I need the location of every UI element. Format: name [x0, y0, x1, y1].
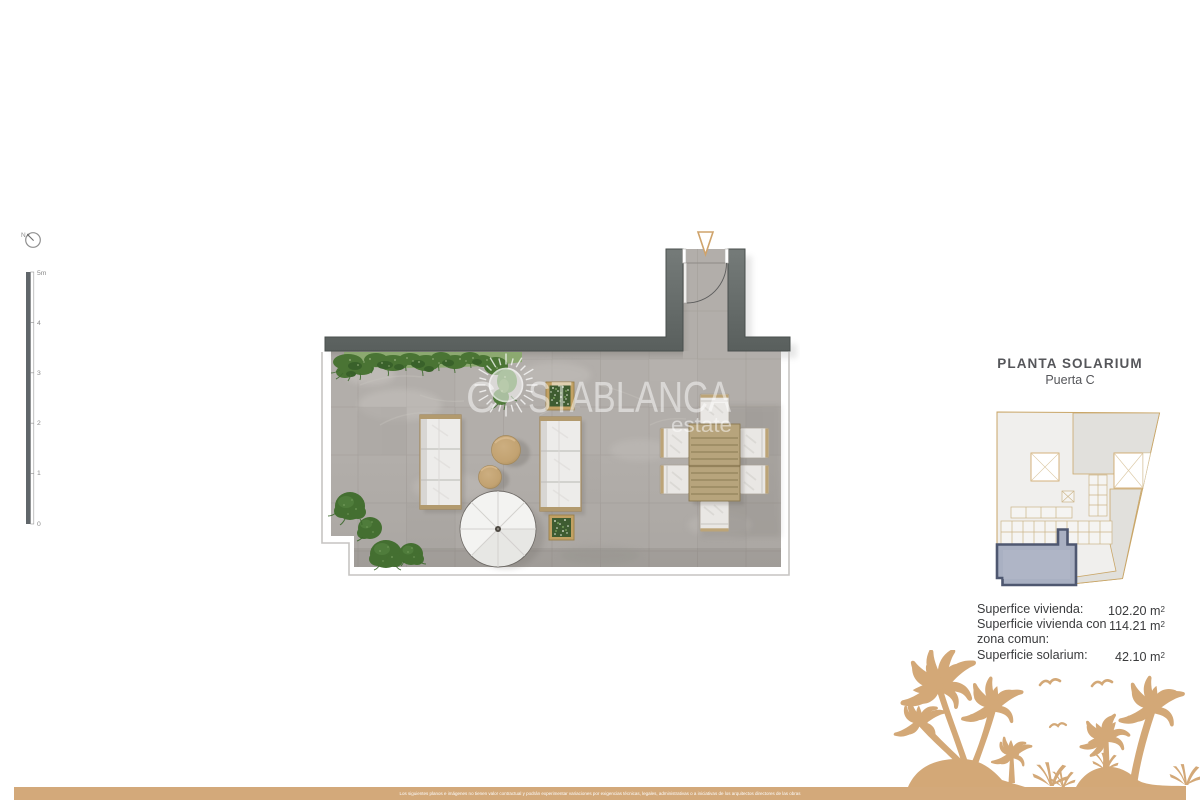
svg-text:0: 0 [37, 521, 41, 528]
svg-text:4: 4 [37, 320, 41, 327]
svg-text:1: 1 [37, 470, 41, 477]
svg-text:5m: 5m [37, 270, 47, 277]
svg-text:N: N [21, 232, 26, 239]
svg-text:2: 2 [37, 420, 41, 427]
svg-text:estate: estate [671, 413, 732, 437]
svg-text:3: 3 [37, 370, 41, 377]
